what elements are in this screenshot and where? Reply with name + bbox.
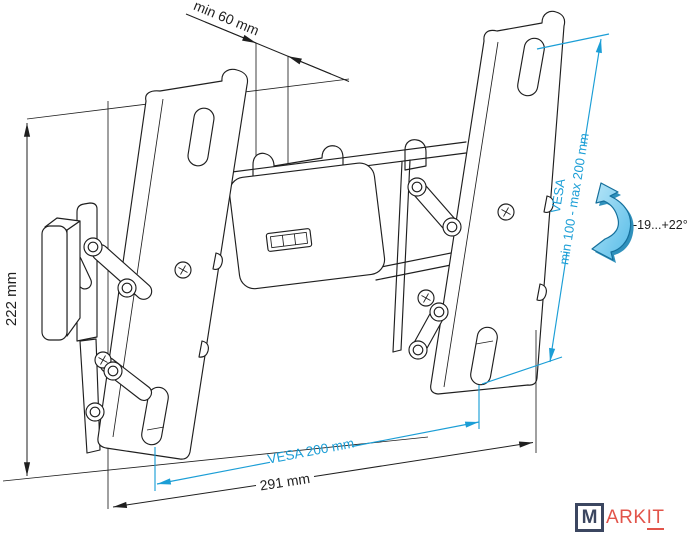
screw-icon — [418, 290, 434, 306]
screw-icon — [104, 362, 122, 380]
screw-icon — [498, 204, 514, 220]
screw-icon — [430, 303, 448, 321]
screw-icon — [175, 262, 191, 278]
bracket-height-label: 222 mm — [3, 272, 20, 326]
wall-mount-diagram: min 60 mm 222 mm 291 mm VESA 200 mm VESA… — [0, 0, 687, 543]
vesa-width-label: VESA 200 mm — [266, 435, 355, 466]
logo-wordmark: ARKIT — [606, 507, 664, 529]
dimension-vesa-width: VESA 200 mm — [155, 385, 479, 491]
drawing-canvas: min 60 mm 222 mm 291 mm VESA 200 mm VESA… — [0, 0, 687, 543]
markit-logo: M ARKIT — [575, 503, 664, 532]
dimension-bracket-height: 222 mm — [3, 123, 27, 476]
left-vesa-bracket — [84, 69, 248, 459]
logo-text: ARK — [606, 507, 647, 528]
wall-clearance-label: min 60 mm — [191, 0, 261, 38]
logo-m-box: M — [575, 503, 604, 532]
logo-underlined-text: IT — [647, 507, 665, 530]
screw-icon — [86, 403, 104, 421]
dimension-wall-clearance: min 60 mm — [186, 0, 349, 81]
total-width-label: 291 mm — [259, 470, 311, 494]
rail-cover — [228, 161, 387, 290]
screw-icon — [408, 178, 426, 196]
right-vesa-bracket — [408, 11, 565, 394]
screw-icon — [118, 279, 136, 297]
screw-icon — [84, 238, 102, 256]
screw-icon — [443, 218, 461, 236]
screw-icon — [409, 341, 427, 359]
tilt-indicator: -19...+22° — [592, 183, 687, 263]
tilt-range-label: -19...+22° — [633, 218, 687, 232]
